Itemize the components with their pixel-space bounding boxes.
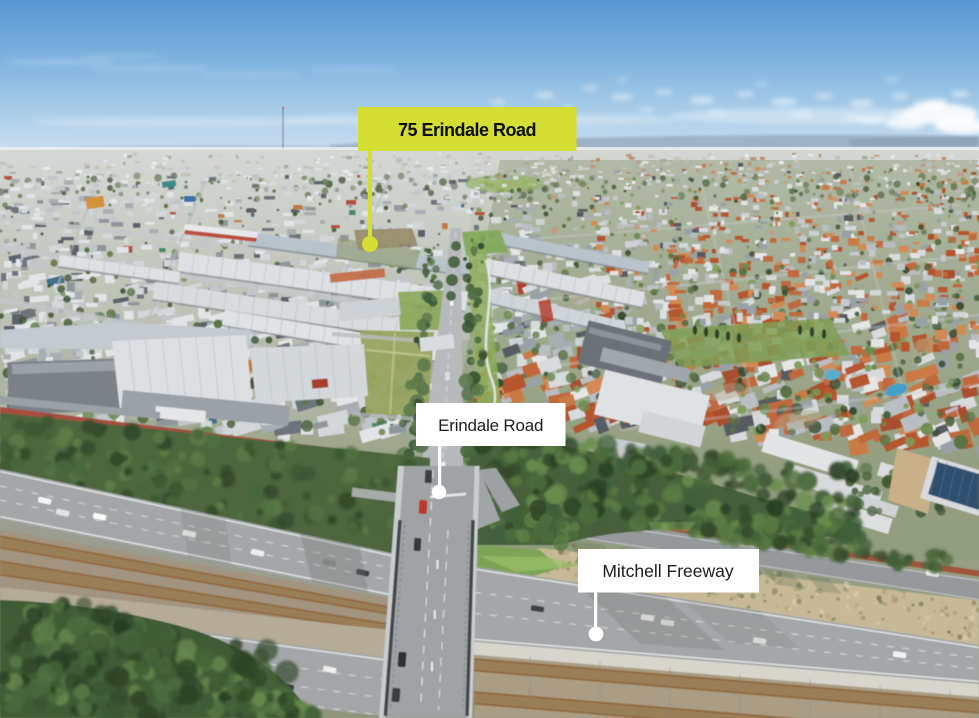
svg-text:75 Erindale Road: 75 Erindale Road (398, 120, 536, 140)
svg-text:Erindale Road: Erindale Road (438, 416, 543, 435)
svg-text:Mitchell Freeway: Mitchell Freeway (602, 561, 734, 581)
